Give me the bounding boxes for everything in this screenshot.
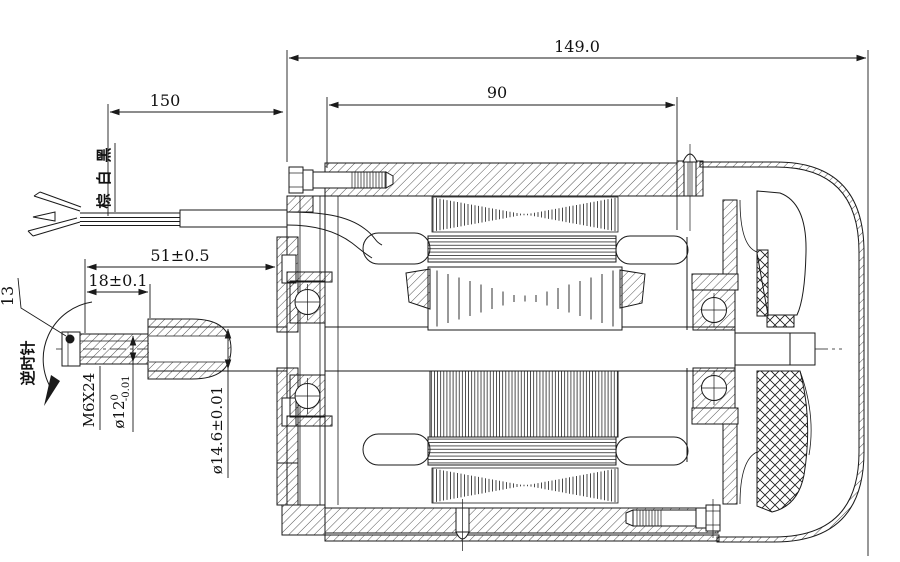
dim-overall-length: 149.0 — [554, 37, 600, 56]
rotor-laminations-bottom — [430, 371, 618, 437]
dim-shaft-extension: 51±0.5 — [150, 246, 209, 265]
stator-winding-top — [433, 198, 615, 232]
front-bearing-top — [287, 272, 332, 323]
dim-thread-spec: M6X24 — [80, 373, 98, 428]
wire-fork-terminal — [28, 192, 81, 236]
stator-winding-bottom — [433, 469, 615, 503]
wire-color-black: 黑 — [95, 147, 113, 162]
label-rotation-direction: 逆时针 — [19, 340, 37, 385]
rotor-wedge-right — [620, 270, 645, 308]
shaft-collar — [148, 319, 231, 379]
bottom-cover-sheet — [325, 535, 719, 541]
rotor-wedge-left — [406, 269, 430, 309]
flat-leader — [18, 278, 66, 336]
lead-wire-assembly — [28, 192, 287, 236]
dim-mounting-span: 90 — [487, 83, 507, 102]
fan-blade-bottom — [757, 371, 808, 512]
wire-color-brown: 棕 — [95, 193, 113, 208]
rotor-core — [406, 267, 645, 330]
shaft-thread-section — [80, 334, 148, 364]
shaft-flat-dot — [66, 335, 75, 344]
stud-bottom-center — [456, 499, 469, 551]
dim-shaft-flat: 13 — [0, 286, 17, 306]
stator-slot-band-bottom — [428, 437, 616, 465]
dim-dia12: ø120-0.01 — [110, 375, 132, 428]
rear-bearing-top — [692, 274, 738, 330]
front-bearing-bottom — [287, 375, 332, 426]
wire-conductors — [80, 213, 180, 226]
motor-body — [56, 144, 864, 551]
stator-slot-band-top — [428, 236, 616, 262]
wire-sheath — [180, 210, 287, 227]
wire-color-white: 白 — [95, 170, 113, 185]
dim-lead-wire-length: 150 — [150, 91, 181, 110]
dim-dia146: ø14.6±0.01 — [208, 386, 226, 474]
rear-bearing-bottom — [692, 368, 738, 424]
motor-engineering-drawing: 149.0 150 90 51±0.5 18±0.1 13 逆时针 M6X24 … — [0, 0, 900, 562]
stud-top-right — [683, 144, 697, 231]
dim-thread-length: 18±0.1 — [88, 271, 147, 290]
